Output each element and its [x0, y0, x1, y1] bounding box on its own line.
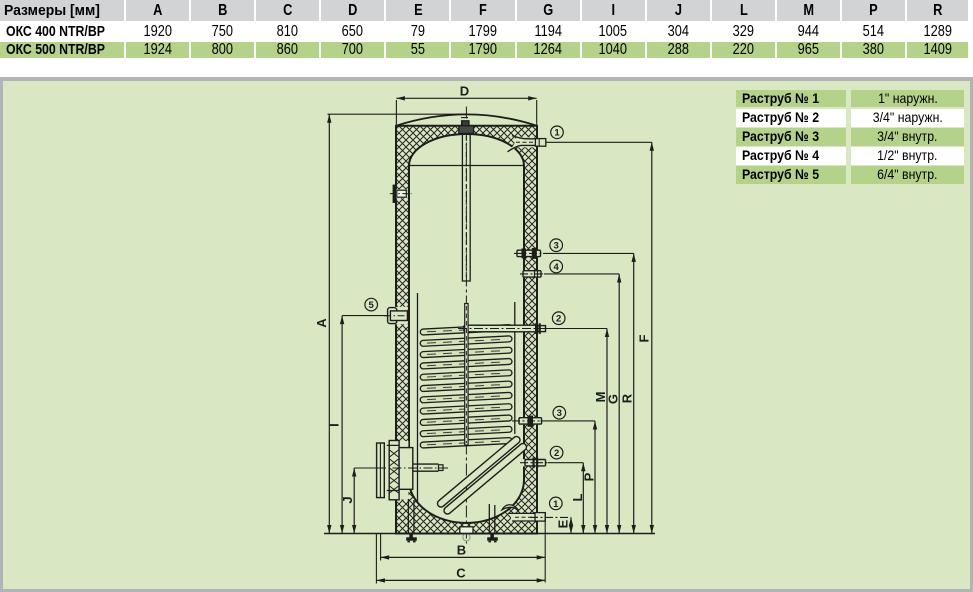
svg-text:F: F — [636, 334, 651, 342]
svg-text:L: L — [570, 493, 585, 501]
svg-text:A: A — [314, 318, 329, 328]
svg-text:2: 2 — [554, 448, 559, 459]
svg-text:1: 1 — [554, 128, 560, 139]
svg-text:1: 1 — [553, 499, 559, 510]
svg-text:J: J — [340, 496, 355, 503]
svg-text:R: R — [619, 393, 634, 403]
svg-text:G: G — [605, 394, 620, 404]
svg-text:5: 5 — [369, 300, 375, 311]
svg-text:2: 2 — [556, 314, 561, 325]
svg-text:D: D — [460, 84, 469, 99]
svg-text:C: C — [456, 566, 466, 581]
svg-text:P: P — [581, 472, 596, 481]
svg-text:B: B — [457, 543, 466, 558]
svg-text:E: E — [556, 519, 571, 528]
svg-text:3: 3 — [554, 241, 559, 252]
svg-text:4: 4 — [554, 262, 560, 273]
svg-text:3: 3 — [557, 408, 562, 419]
svg-text:I: I — [326, 423, 341, 427]
